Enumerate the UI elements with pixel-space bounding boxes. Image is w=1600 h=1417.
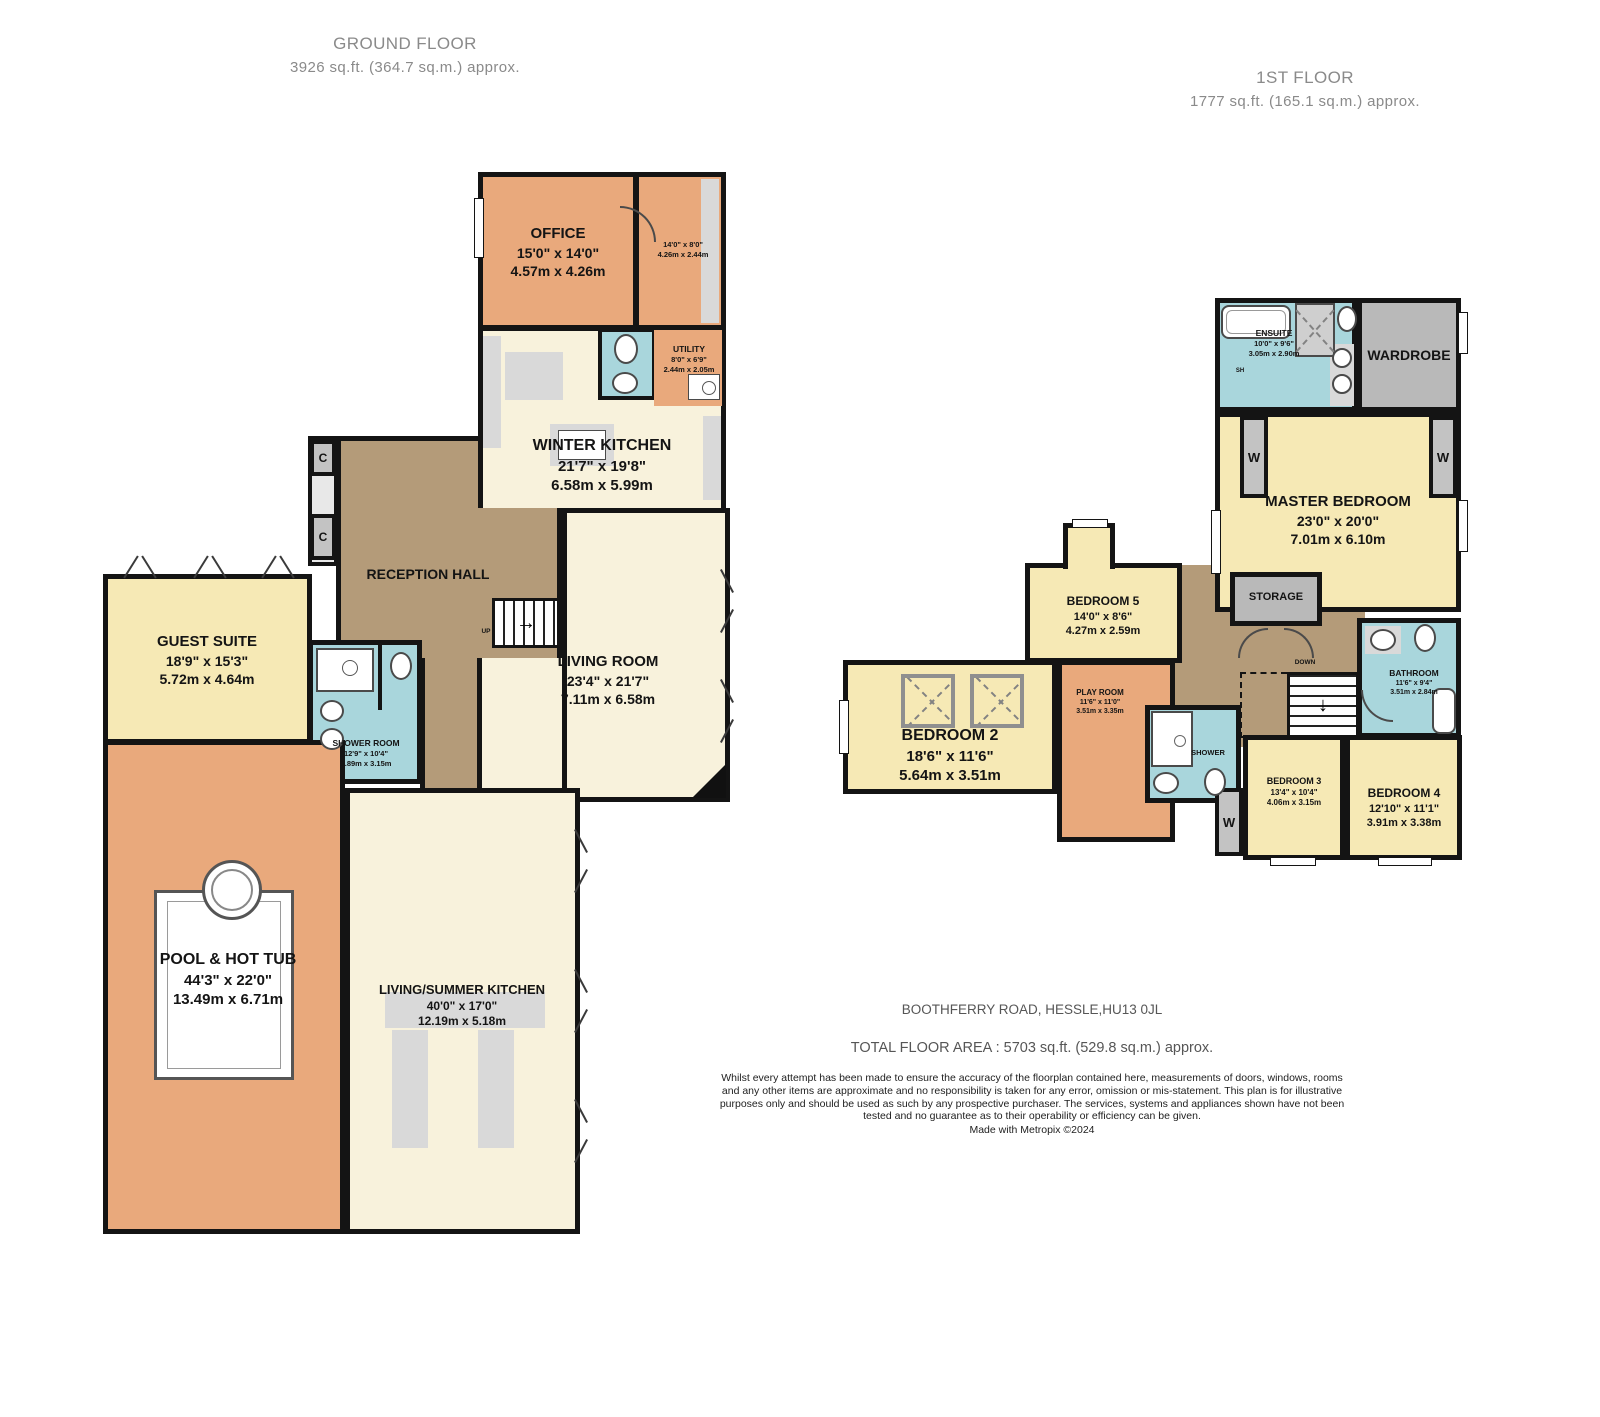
- ground-floor-title: GROUND FLOOR 3926 sq.ft. (364.7 sq.m.) a…: [180, 32, 630, 78]
- stairs-up-arrow-icon: →: [516, 612, 536, 635]
- address: BOOTHFERRY ROAD, HESSLE,HU13 0JL: [732, 1002, 1332, 1017]
- vanity-sink-icon: [316, 648, 374, 692]
- window: [1072, 519, 1108, 528]
- playroom-label: PLAY ROOM 11'6" x 11'0" 3.51m x 3.35m: [1076, 688, 1124, 717]
- closet-c: C: [310, 440, 336, 476]
- utility-label: UTILITY 8'0" x 6'9" 2.44m x 2.05m: [664, 344, 715, 375]
- summer-kitchen-label: LIVING/SUMMER KITCHEN 40'0" x 17'0" 12.1…: [379, 982, 545, 1030]
- office-annex-label: 14'0" x 8'0" 4.26m x 2.44m: [658, 240, 709, 260]
- shower-room-label: SHOWER ROOM 12'9" x 10'4" 3.89m x 3.15m: [332, 738, 399, 769]
- toilet-icon: [1414, 624, 1436, 652]
- wardrobe-closet: W: [1240, 416, 1268, 498]
- skylight-icon: [970, 674, 1024, 728]
- total-floor-area: TOTAL FLOOR AREA : 5703 sq.ft. (529.8 sq…: [712, 1040, 1352, 1056]
- room-living-ext: [482, 658, 562, 802]
- wardrobe-label: WARDROBE: [1367, 346, 1450, 364]
- sink-drain-icon: [342, 660, 358, 676]
- window: [1458, 500, 1468, 552]
- fireplace-icon: [692, 764, 726, 798]
- toilet-icon: [1204, 768, 1226, 796]
- first-floor-area-line: 1777 sq.ft. (165.1 sq.m.) approx.: [1080, 91, 1530, 113]
- window: [839, 700, 849, 754]
- guest-suite-label: GUEST SUITE 18'9" x 15'3" 5.72m x 4.64m: [157, 632, 257, 688]
- washer-icon: [688, 374, 720, 400]
- kitchen-counter: [478, 1030, 514, 1148]
- hot-tub-icon: [202, 860, 262, 920]
- stairs-void: [1240, 672, 1287, 738]
- kitchen-counter: [703, 416, 721, 500]
- disclaimer: Whilst every attempt has been made to en…: [712, 1072, 1352, 1123]
- stairs-down-arrow-icon: ↓: [1318, 694, 1328, 717]
- stairs-down-label: DOWN: [1295, 659, 1316, 667]
- first-floor-title: 1ST FLOOR 1777 sq.ft. (165.1 sq.m.) appr…: [1080, 66, 1530, 112]
- closet-c: C: [310, 514, 336, 560]
- window: [1211, 510, 1221, 574]
- ensuite-shower-label: SH: [1236, 368, 1244, 376]
- bedroom5-label: BEDROOM 5 14'0" x 8'6" 4.27m x 2.59m: [1066, 594, 1141, 638]
- reception-hall-label: RECEPTION HALL: [367, 565, 490, 583]
- bedroom4-label: BEDROOM 4 12'10" x 11'1" 3.91m x 3.38m: [1367, 786, 1442, 830]
- skylight-icon: [901, 674, 955, 728]
- hot-tub-ring: [211, 869, 253, 911]
- stairs-up: →: [492, 598, 560, 648]
- kitchen-counter: [483, 336, 501, 448]
- toilet-icon: [390, 652, 412, 680]
- window: [1270, 857, 1316, 866]
- winter-kitchen-label: WINTER KITCHEN 21'7" x 19'8" 6.58m x 5.9…: [533, 436, 672, 496]
- kitchen-counter: [392, 1030, 428, 1148]
- bedroom5-bay: [1063, 523, 1115, 569]
- wardrobe-closet: W: [1215, 788, 1243, 856]
- bedroom3-label: BEDROOM 3 13'4" x 10'4" 4.06m x 3.15m: [1267, 776, 1322, 808]
- shower-drain-icon: [1174, 735, 1186, 747]
- reception-hall-corridor: [420, 658, 482, 792]
- shower-cubicle-icon: [1295, 303, 1335, 357]
- shower-label: SHOWER: [1191, 748, 1225, 758]
- stairs-up-label: UP: [481, 628, 490, 636]
- wardrobe-closet: W: [1429, 416, 1457, 498]
- master-bedroom-label: MASTER BEDROOM 23'0" x 20'0" 7.01m x 6.1…: [1265, 492, 1411, 548]
- ensuite-label: ENSUITE 10'0" x 9'6" 3.05m x 2.90m: [1249, 328, 1300, 359]
- metropix-credit: Made with Metropix ©2024: [712, 1124, 1352, 1137]
- bathroom-label: BATHROOM 11'6" x 9'4" 3.51m x 2.84m: [1389, 668, 1438, 697]
- first-floor-title-line: 1ST FLOOR: [1080, 66, 1530, 91]
- ground-floor-title-line: GROUND FLOOR: [180, 32, 630, 57]
- sink-icon: [1370, 629, 1396, 651]
- window: [1458, 312, 1468, 354]
- bedroom2-label: BEDROOM 2 18'6" x 11'6" 5.64m x 3.51m: [899, 726, 1001, 786]
- sink-icon: [1332, 348, 1352, 368]
- window: [474, 198, 484, 258]
- sink-icon: [1332, 374, 1352, 394]
- washer-door-icon: [702, 381, 716, 395]
- window: [1378, 857, 1432, 866]
- floorplan-page: { "colors": { "room_orange": "#E9A97C", …: [0, 0, 1600, 1417]
- office-label: OFFICE 15'0" x 14'0" 4.57m x 4.26m: [511, 224, 606, 280]
- storage-label: STORAGE: [1249, 590, 1303, 604]
- pool-label: POOL & HOT TUB 44'3" x 22'0" 13.49m x 6.…: [160, 950, 297, 1010]
- toilet-icon: [1337, 306, 1357, 332]
- toilet-icon: [614, 334, 638, 364]
- kitchen-counter: [505, 352, 563, 400]
- sink-icon: [320, 700, 344, 722]
- stairs-down: ↓: [1287, 672, 1359, 738]
- ground-floor-area-line: 3926 sq.ft. (364.7 sq.m.) approx.: [180, 57, 630, 79]
- living-room-label: LIVING ROOM 23'4" x 21'7" 7.11m x 6.58m: [558, 652, 659, 708]
- shower-tray-icon: [1151, 711, 1193, 767]
- wc-divider-wall: [378, 644, 382, 710]
- sink-icon: [1153, 772, 1179, 794]
- sink-icon: [612, 372, 638, 394]
